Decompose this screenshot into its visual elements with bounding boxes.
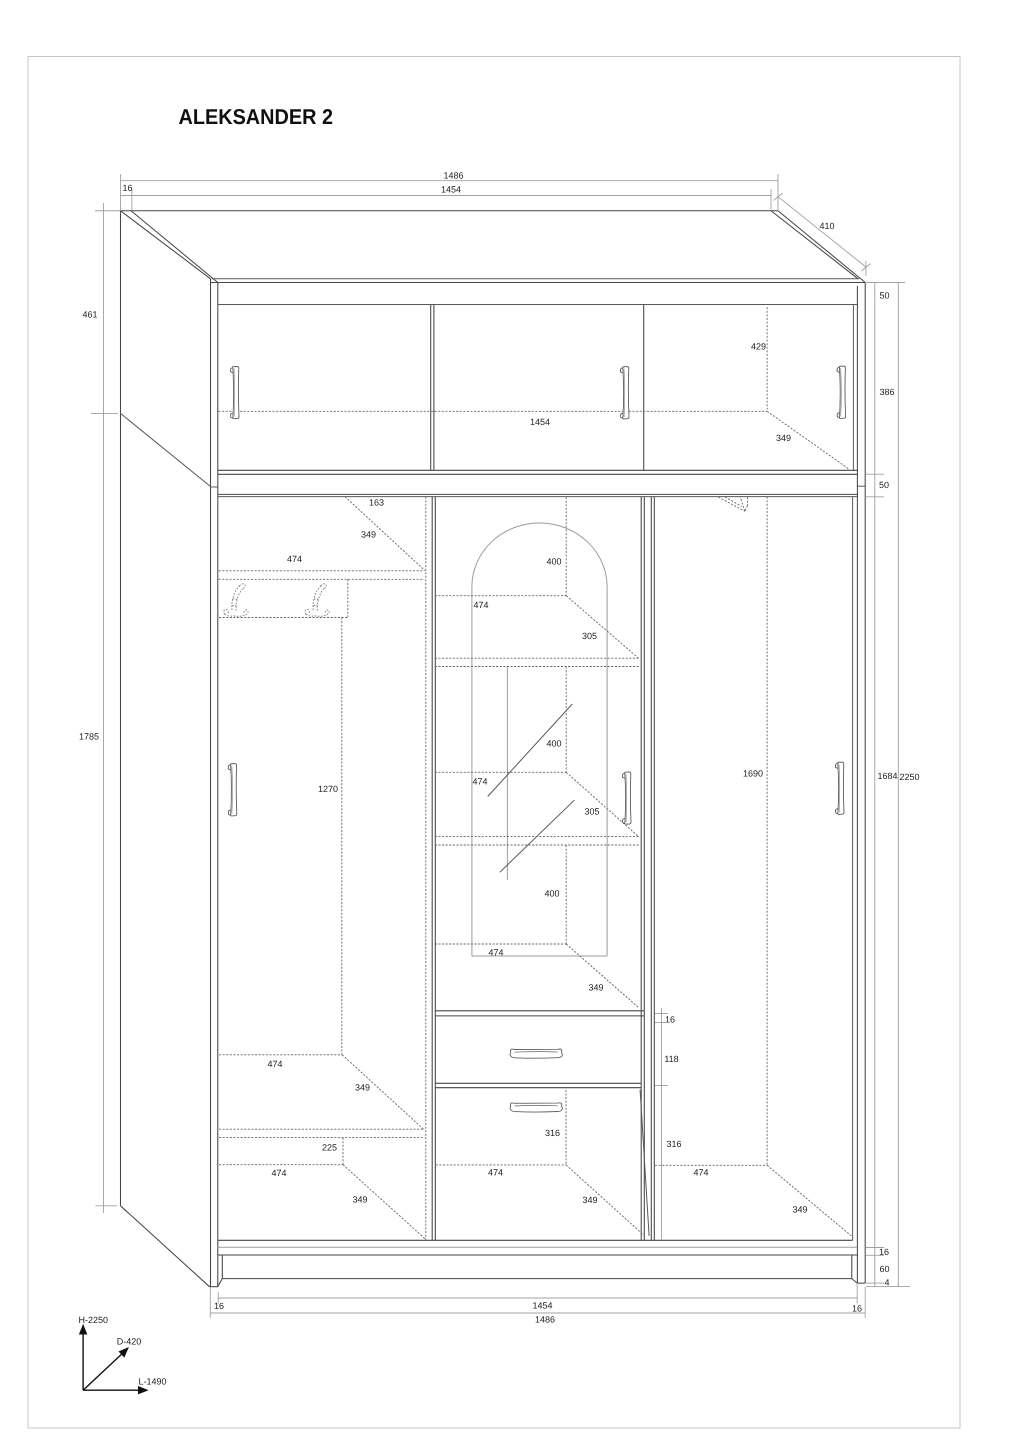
svg-text:474: 474: [271, 1168, 286, 1178]
svg-text:1454: 1454: [532, 1301, 552, 1311]
svg-text:349: 349: [776, 433, 791, 443]
svg-text:1684: 1684: [877, 771, 897, 781]
svg-text:225: 225: [322, 1143, 337, 1153]
svg-text:16: 16: [852, 1304, 862, 1314]
svg-text:4: 4: [884, 1278, 889, 1288]
svg-text:305: 305: [584, 807, 599, 817]
svg-text:16: 16: [879, 1247, 889, 1257]
svg-text:60: 60: [879, 1264, 889, 1274]
svg-text:305: 305: [582, 631, 597, 641]
svg-text:400: 400: [544, 888, 559, 898]
svg-text:349: 349: [355, 1082, 370, 1092]
svg-text:349: 349: [792, 1204, 807, 1214]
svg-text:D-420: D-420: [117, 1336, 142, 1346]
svg-text:461: 461: [82, 310, 97, 320]
svg-text:410: 410: [819, 221, 834, 231]
svg-text:ALEKSANDER 2: ALEKSANDER 2: [179, 105, 334, 129]
svg-text:316: 316: [666, 1139, 681, 1149]
svg-text:50: 50: [879, 291, 889, 301]
svg-text:163: 163: [369, 498, 384, 508]
svg-text:2250: 2250: [899, 772, 919, 782]
svg-text:474: 474: [488, 1168, 503, 1178]
svg-text:349: 349: [582, 1195, 597, 1205]
svg-text:118: 118: [664, 1054, 678, 1064]
svg-text:1454: 1454: [441, 185, 461, 195]
svg-text:474: 474: [488, 948, 503, 958]
svg-text:474: 474: [287, 554, 302, 564]
svg-text:349: 349: [361, 530, 376, 540]
svg-text:1486: 1486: [535, 1315, 555, 1325]
svg-text:1785: 1785: [79, 732, 99, 742]
svg-text:474: 474: [473, 600, 488, 610]
svg-text:50: 50: [879, 480, 889, 490]
svg-text:349: 349: [588, 982, 603, 992]
svg-text:1454: 1454: [530, 417, 550, 427]
svg-text:349: 349: [352, 1195, 367, 1205]
svg-text:474: 474: [693, 1168, 708, 1178]
svg-text:16: 16: [214, 1301, 224, 1311]
svg-text:386: 386: [879, 387, 894, 397]
svg-text:316: 316: [545, 1128, 560, 1138]
svg-text:H-2250: H-2250: [79, 1315, 109, 1325]
svg-text:1486: 1486: [443, 171, 463, 181]
svg-text:16: 16: [122, 183, 132, 193]
svg-text:429: 429: [751, 342, 766, 352]
svg-text:474: 474: [267, 1059, 282, 1069]
svg-text:474: 474: [472, 777, 487, 787]
svg-text:1690: 1690: [743, 769, 763, 779]
svg-text:1270: 1270: [318, 784, 338, 794]
svg-text:400: 400: [546, 556, 561, 566]
svg-text:L-1490: L-1490: [139, 1376, 167, 1386]
svg-text:400: 400: [546, 739, 561, 749]
